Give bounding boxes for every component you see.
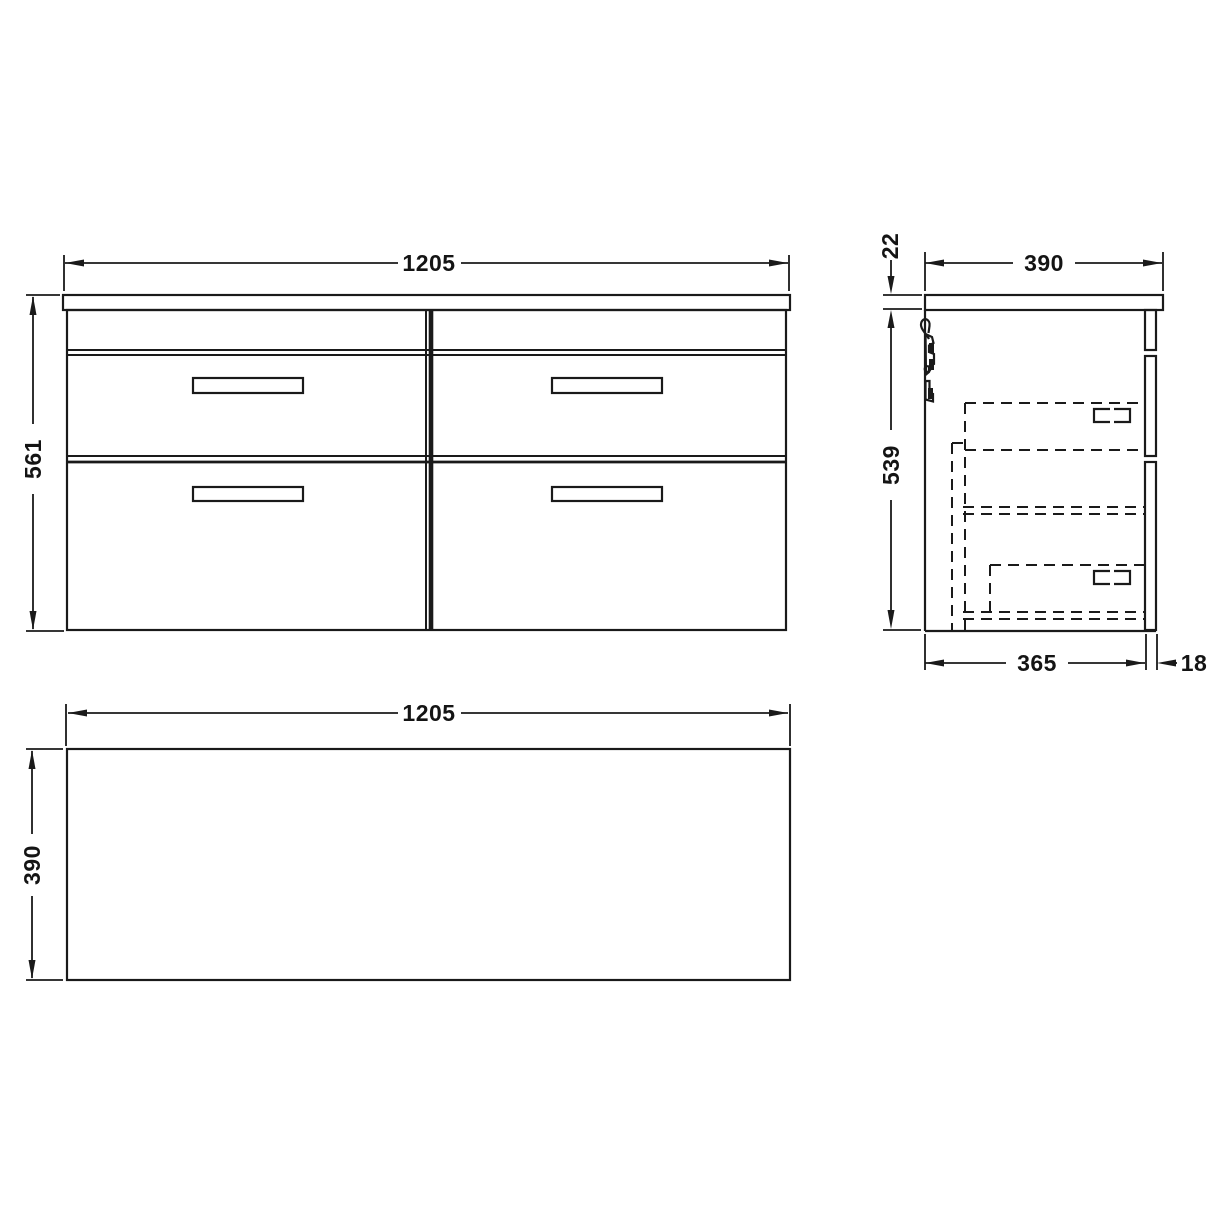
side-carcass-depth-dimension: 365 xyxy=(925,634,1146,676)
front-drawer-handles xyxy=(193,378,662,501)
drawer-handle xyxy=(552,378,662,393)
front-width-dimension: 1205 xyxy=(64,250,789,291)
drawer-handle xyxy=(193,487,303,501)
plan-depth-label: 390 xyxy=(19,845,45,885)
side-depth-dimension: 390 xyxy=(925,250,1163,291)
front-height-label: 561 xyxy=(20,439,46,479)
plan-width-dimension: 1205 xyxy=(66,700,790,746)
side-front-thickness-label: 18 xyxy=(1181,650,1208,676)
technical-drawing-canvas: 1205 561 xyxy=(0,0,1224,1224)
side-front-upper-drawer xyxy=(1145,356,1156,456)
side-worktop-thickness-dimension: 22 xyxy=(877,233,922,328)
plan-view: 1205 390 xyxy=(19,700,790,980)
side-view: 390 22 539 xyxy=(877,233,1207,676)
front-width-label: 1205 xyxy=(402,250,455,276)
front-height-dimension: 561 xyxy=(20,295,64,631)
side-depth-label: 390 xyxy=(1024,250,1064,276)
plan-depth-dimension: 390 xyxy=(19,749,63,980)
plan-worktop-outline xyxy=(67,749,790,980)
front-center-divider xyxy=(426,310,431,630)
side-front-top-strip xyxy=(1145,310,1156,350)
drawer-handle xyxy=(552,487,662,501)
side-front-thickness-dimension: 18 xyxy=(1157,634,1207,676)
side-worktop-thickness-label: 22 xyxy=(877,233,903,260)
side-front-lower-drawer xyxy=(1145,462,1156,630)
side-carcass xyxy=(925,310,1156,631)
side-worktop xyxy=(925,295,1163,310)
drawer-handle xyxy=(193,378,303,393)
side-carcass-depth-label: 365 xyxy=(1017,650,1057,676)
front-worktop xyxy=(63,295,790,310)
plan-width-label: 1205 xyxy=(402,700,455,726)
side-height-label: 539 xyxy=(878,445,904,485)
side-drawer-fronts xyxy=(1145,310,1156,630)
wall-bracket-icon xyxy=(921,319,934,401)
side-height-dimension: 539 xyxy=(878,328,921,630)
front-view: 1205 561 xyxy=(20,250,790,631)
drawer-runner-brackets xyxy=(1094,409,1130,584)
hidden-drawer-outlines xyxy=(952,403,1145,630)
